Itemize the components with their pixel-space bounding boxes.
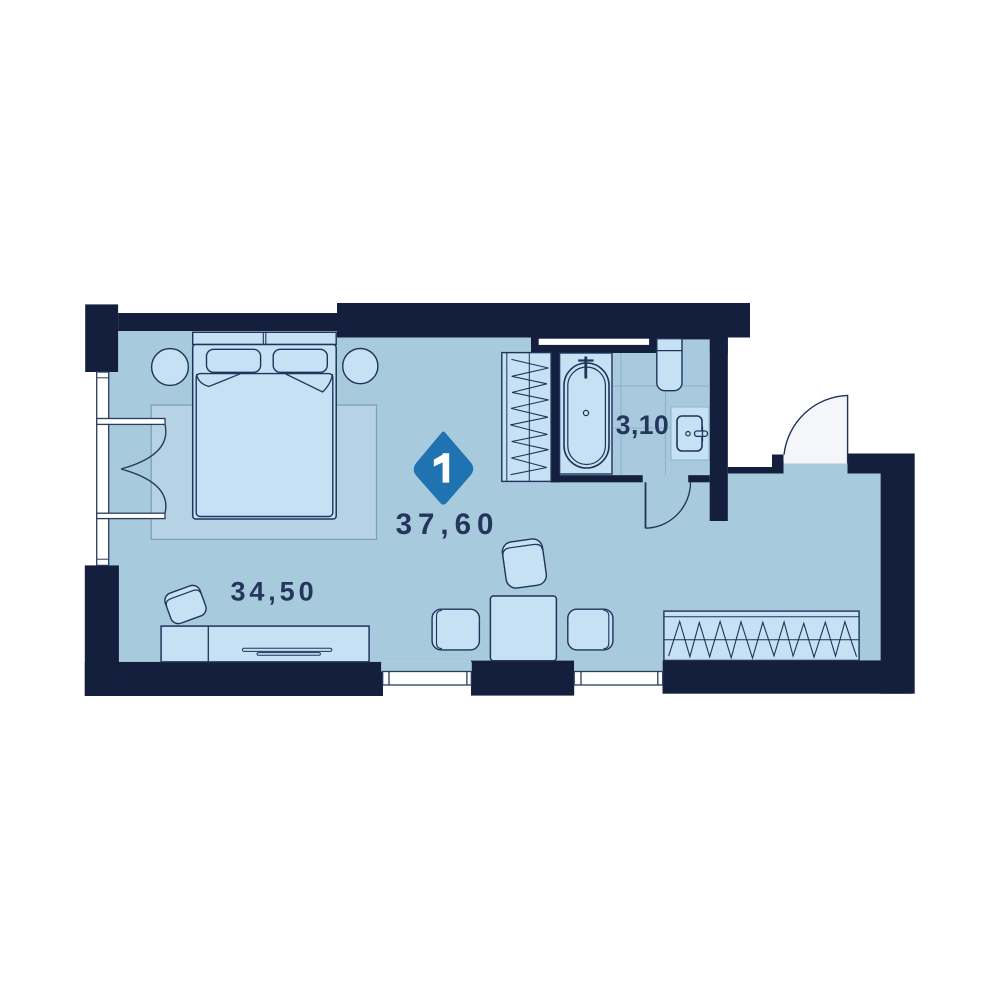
svg-text:3,10: 3,10 [616, 410, 670, 440]
svg-text:34,50: 34,50 [230, 577, 317, 607]
svg-text:37,60: 37,60 [396, 508, 500, 541]
